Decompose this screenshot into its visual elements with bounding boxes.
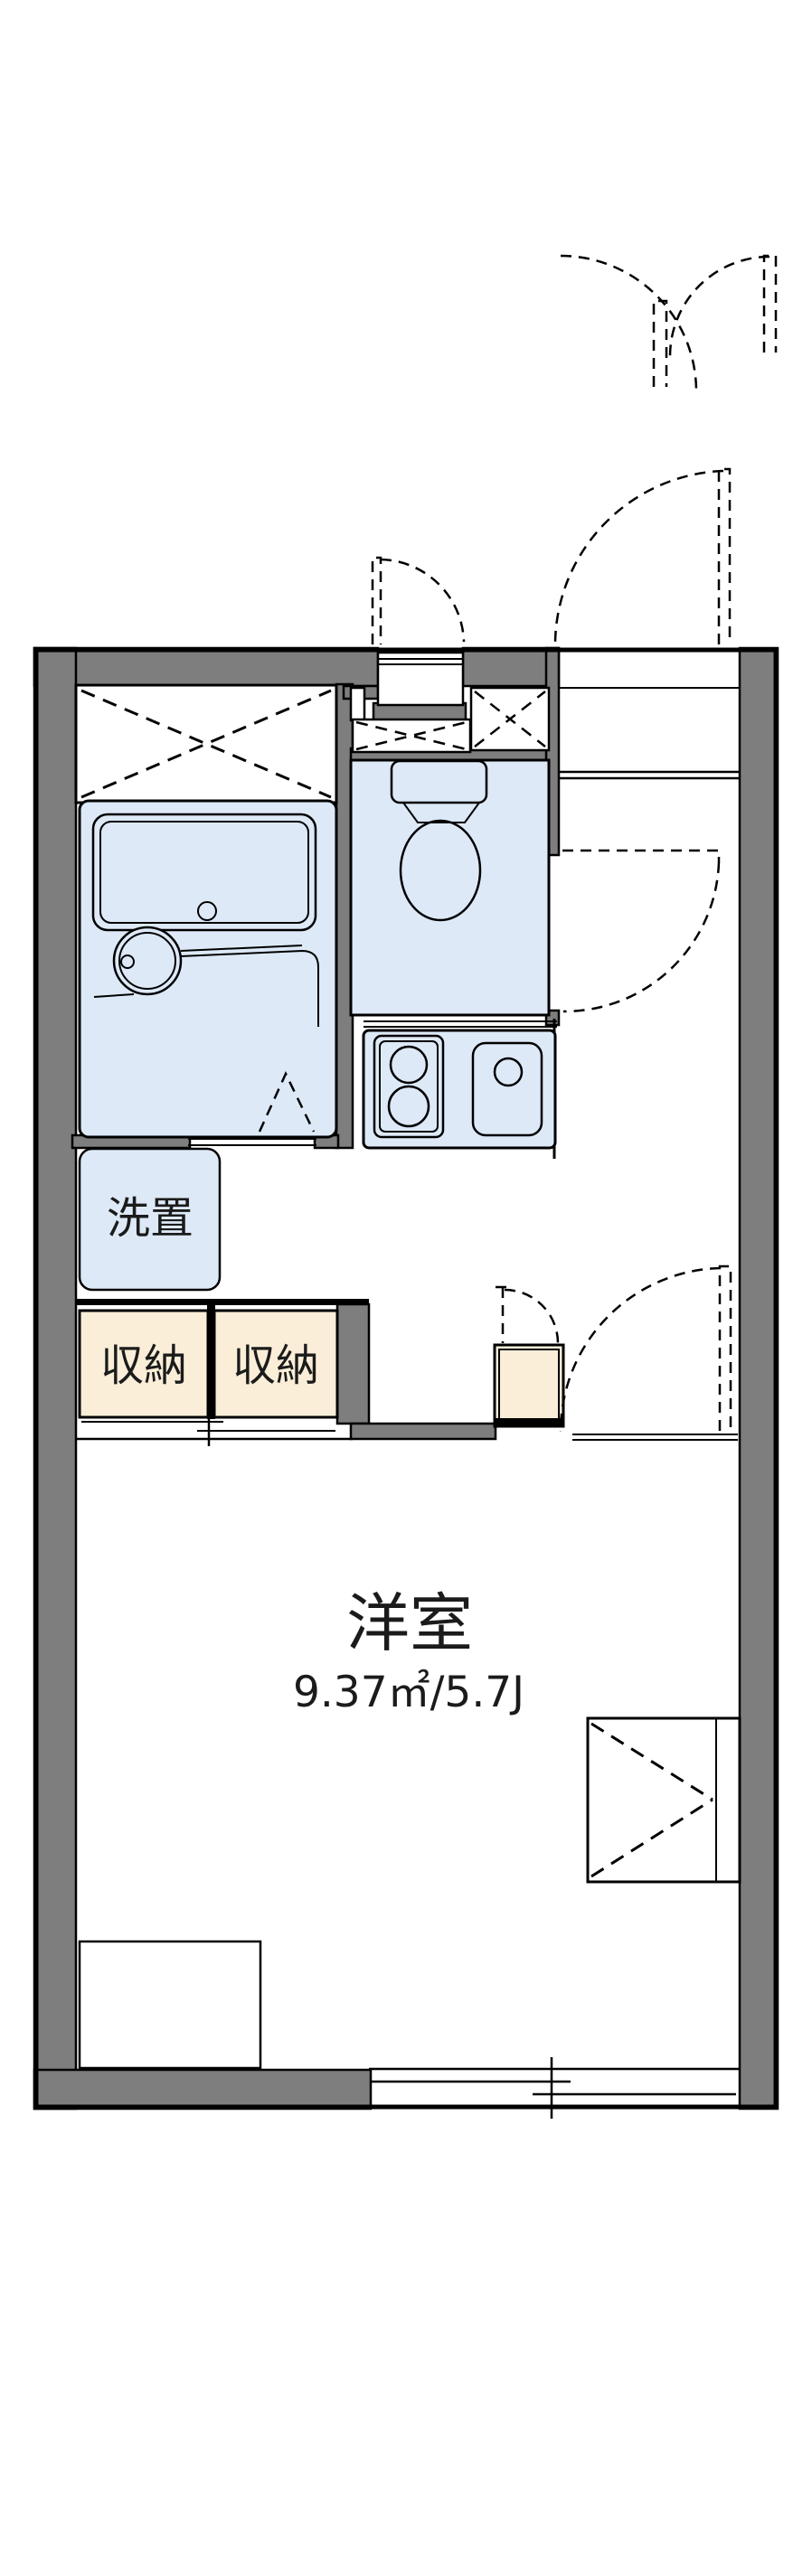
wall-left xyxy=(34,648,76,2109)
storage-left-label: 収納 xyxy=(100,1340,187,1391)
refrigerator-door-arc xyxy=(505,1290,558,1343)
washbasin-outer xyxy=(114,927,181,994)
porch-door-leaf xyxy=(719,469,730,644)
main-room: 洋室 9.37㎡/5.7J xyxy=(80,1586,740,2068)
room-door-arc xyxy=(561,1268,721,1432)
main-room-size-label: 9.37㎡/5.7J xyxy=(293,1668,524,1717)
toilet-tank xyxy=(392,761,486,803)
washer-space-label: 洗置 xyxy=(107,1193,194,1244)
shelf-a xyxy=(353,719,470,752)
shelf-notch xyxy=(351,688,364,720)
toilet-door-arc xyxy=(563,862,719,1011)
kitchen xyxy=(364,1019,557,1159)
wall-bottom xyxy=(34,2070,371,2109)
washer-space: 洗置 xyxy=(80,1149,220,1290)
wall-storage-right xyxy=(337,1304,369,1424)
toilet-door-leaf xyxy=(562,851,719,862)
bathroom xyxy=(80,801,336,1145)
balcony-window xyxy=(369,2057,740,2119)
entrance-door-swings xyxy=(373,469,730,644)
floor-plan-drawing: 洗置 収納 収納 洋室 9.37㎡/5.7J xyxy=(0,0,812,2576)
kitchen-counter xyxy=(364,1030,555,1148)
storage-right-label: 収納 xyxy=(232,1340,319,1391)
upper-door-swings xyxy=(561,256,776,391)
refrigerator-box xyxy=(495,1345,563,1426)
upper-door-arc-right xyxy=(670,257,770,356)
main-room-name-label: 洋室 xyxy=(346,1586,473,1660)
toilet-bowl xyxy=(401,821,480,920)
furniture-outline xyxy=(80,1941,260,2068)
floor-plan-page: 洗置 収納 収納 洋室 9.37㎡/5.7J xyxy=(0,0,812,2576)
refrigerator-space xyxy=(495,1287,563,1426)
porch-door-arc xyxy=(555,471,723,643)
upper-door-leaf-right xyxy=(764,256,776,353)
refrigerator-door-leaf xyxy=(496,1287,507,1343)
entrance-door-arc xyxy=(381,559,464,642)
upper-door-arc-left xyxy=(561,256,696,391)
refrigerator-box-base xyxy=(495,1418,563,1426)
wall-top-left xyxy=(34,648,378,686)
upper-door-leaf-left xyxy=(654,301,666,387)
storage-closets: 収納 収納 xyxy=(76,1311,353,1446)
wall-corridor-room xyxy=(351,1424,496,1439)
toilet-room xyxy=(351,760,719,1015)
entrance-door-leaf xyxy=(373,558,381,644)
bathroom-upper-closet xyxy=(76,685,336,803)
wall-right xyxy=(740,648,778,2109)
room-door-leaf xyxy=(720,1266,731,1431)
wall-top-mid xyxy=(463,648,559,686)
wall-storage-top-line xyxy=(76,1299,369,1305)
main-room-door xyxy=(561,1266,738,1440)
entrance-alcove xyxy=(378,653,463,705)
